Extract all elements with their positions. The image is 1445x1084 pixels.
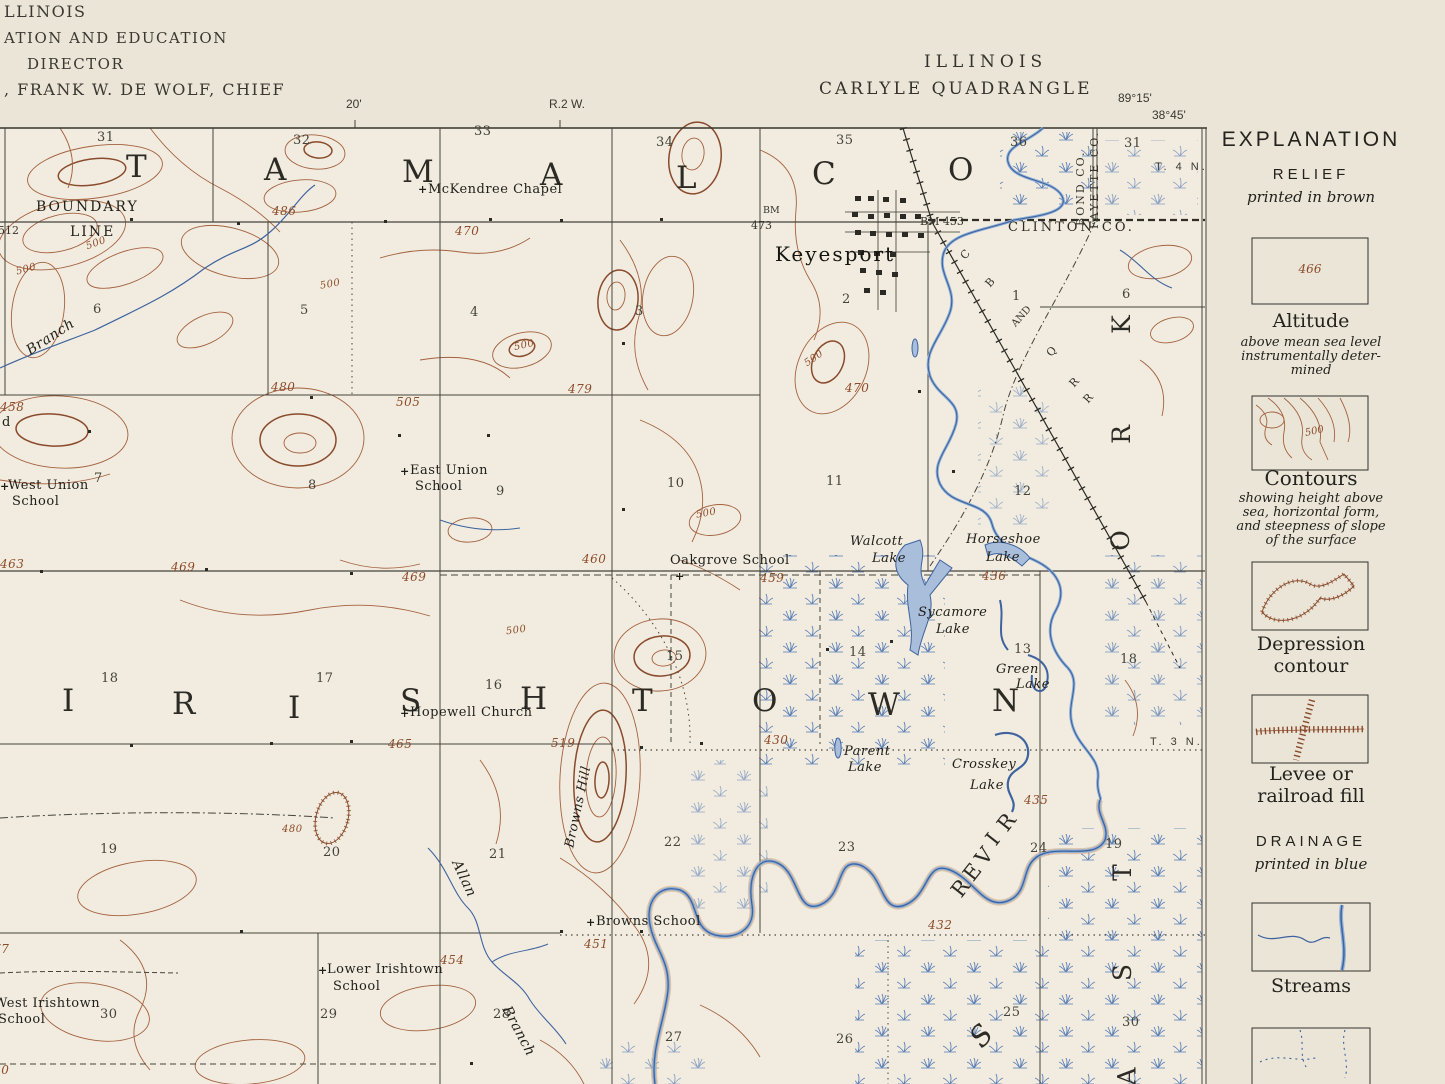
section-number: 21: [489, 848, 507, 861]
place-mckendree-chapel: McKendree Chapel: [428, 183, 562, 196]
section-number: 15: [666, 650, 684, 663]
legend-contours-desc4: of the surface: [1205, 533, 1417, 548]
contour-elevation: 459: [760, 572, 784, 584]
township-letter: A: [264, 155, 286, 186]
contour-elevation: 465: [388, 738, 412, 750]
section-number: 7: [94, 472, 103, 485]
legend-contours-label: Contours: [1205, 466, 1417, 490]
lake-name-parent-2: Lake: [848, 761, 882, 774]
section-number: 2: [842, 293, 851, 306]
contour-elevation: 451: [584, 938, 608, 950]
section-number: 13: [1014, 643, 1032, 656]
lake-name-sycamore: Sycamore: [918, 606, 987, 619]
contour-elevation: 458: [0, 401, 24, 413]
section-number: 18: [101, 672, 119, 685]
legend-streams-label: Streams: [1205, 975, 1417, 997]
legend-contours-desc3: and steepness of slope: [1205, 519, 1417, 534]
section-number: 24: [1030, 842, 1048, 855]
township-letter: T: [632, 686, 653, 717]
section-number: 6: [1122, 288, 1131, 301]
legend-depression-label1: Depression: [1205, 633, 1417, 655]
lake-name-crosskey: Crosskey: [952, 758, 1016, 771]
contour-elevation: 519: [551, 737, 575, 749]
legend-altitude-desc2: instrumentally deter-: [1205, 349, 1417, 364]
section-number: 30: [100, 1008, 118, 1021]
legend-depression-label2: contour: [1205, 655, 1417, 677]
section-number: 10: [667, 477, 685, 490]
stream-name-letter: O: [1108, 530, 1133, 551]
stream-name-letter: T: [1110, 864, 1135, 881]
header-line-3: DIRECTOR: [27, 57, 124, 72]
legend-relief-heading: RELIEF: [1205, 166, 1417, 183]
section-number: 3: [635, 305, 644, 318]
township-3n-label: T. 3 N.: [1150, 737, 1203, 748]
ruler-minute-label: 20': [346, 98, 362, 110]
section-number: 1: [1012, 290, 1021, 303]
legend-drainage-sub: printed in blue: [1205, 855, 1417, 873]
township-letter: I: [62, 686, 74, 717]
section-number: 6: [93, 303, 102, 316]
contour-elevation: 480: [282, 825, 303, 835]
stream-name-letter: A: [1115, 1067, 1140, 1084]
legend-altitude-label: Altitude: [1205, 310, 1417, 332]
school-cross-icon: +: [586, 917, 595, 928]
latitude-label: 38°45': [1152, 109, 1186, 121]
lake-name-sycamore-2: Lake: [936, 623, 970, 636]
section-number: 4: [470, 306, 479, 319]
section-number: 25: [1003, 1006, 1021, 1019]
contour-elevation: 505: [396, 396, 420, 408]
header-line-1: LLINOIS: [4, 4, 86, 20]
section-number: 30: [1122, 1016, 1140, 1029]
stream-name-letter: S: [1110, 964, 1135, 981]
section-number: 31: [1124, 137, 1142, 150]
legend-title: EXPLANATION: [1205, 128, 1417, 152]
place-west-union-school: West Union: [8, 479, 89, 492]
legend-altitude-value: 466: [1252, 262, 1368, 276]
school-cross-icon: +: [675, 571, 684, 582]
place-west-union-school-2: School: [12, 495, 59, 508]
section-number: 12: [1014, 485, 1032, 498]
lake-name-crosskey-2: Lake: [970, 779, 1004, 792]
place-west-irishtown-school-2: School: [0, 1013, 45, 1026]
legend-altitude-desc3: mined: [1205, 363, 1417, 378]
section-number: 33: [474, 125, 492, 138]
township-letter: W: [868, 690, 900, 721]
contour-elevation: 435: [1024, 794, 1048, 806]
legend-altitude-desc1: above mean sea level: [1205, 335, 1417, 350]
section-number: 8: [308, 479, 317, 492]
church-cross-icon: +: [400, 708, 409, 719]
contour-elevation: 477: [0, 943, 9, 955]
section-number: 20: [323, 846, 341, 859]
place-browns-school: Browns School: [596, 915, 701, 928]
section-number: 27: [665, 1031, 683, 1044]
spot-elevation: 473: [751, 220, 772, 231]
lake-name-horseshoe: Horseshoe: [966, 533, 1041, 546]
lake-name-horseshoe-2: Lake: [986, 551, 1020, 564]
place-lower-irishtown-school: Lower Irishtown: [327, 963, 443, 976]
contour-elevation: 470: [845, 382, 869, 394]
contour-elevation: 469: [171, 561, 195, 573]
lake-name-green: Green: [996, 663, 1039, 676]
section-number: 14: [849, 646, 867, 659]
lake-name-parent: Parent: [844, 745, 890, 758]
section-number: 23: [838, 841, 856, 854]
section-number: 19: [100, 843, 118, 856]
county-name-fayette: FAYETTE CO.: [1089, 131, 1100, 229]
place-keyesport: Keyesport: [775, 244, 895, 264]
boundary-line-label: BOUNDARY: [36, 200, 139, 214]
contour-elevation: 454: [440, 954, 464, 966]
contour-elevation: 432: [928, 919, 952, 931]
township-letter: R: [172, 689, 195, 720]
legend-levee-label2: railroad fill: [1205, 785, 1417, 807]
county-name-clinton: CLINTON CO.: [1008, 221, 1135, 234]
section-number: 36: [1010, 136, 1028, 149]
legend-contours-desc2: sea, horizontal form,: [1205, 505, 1417, 520]
place-west-irishtown-school: West Irishtown: [0, 997, 100, 1010]
header-line-2: ATION AND EDUCATION: [4, 31, 228, 46]
township-letter: C: [812, 159, 836, 190]
longitude-label: 89°15': [1118, 92, 1152, 104]
section-number: 5: [300, 304, 309, 317]
contour-elevation: 486: [272, 205, 296, 217]
contour-elevation: 436: [982, 570, 1006, 582]
place-east-union-school-2: School: [415, 480, 462, 493]
place-hopewell-church: Hopewell Church: [410, 706, 533, 719]
county-name-bond: BOND CO.: [1075, 150, 1086, 226]
section-number: 35: [836, 134, 854, 147]
section-number: 29: [320, 1008, 338, 1021]
topo-map-sheet: LLINOIS ATION AND EDUCATION DIRECTOR , F…: [0, 0, 1445, 1084]
header-line-4: , FRANK W. DE WOLF, CHIEF: [4, 82, 285, 98]
school-cross-icon: +: [318, 965, 327, 976]
township-letter: I: [288, 693, 300, 724]
contour-elevation: 460: [582, 553, 606, 565]
contour-elevation: 469: [402, 571, 426, 583]
township-4n-label: T. 4 N.: [1155, 162, 1208, 173]
legend-drainage-heading: DRAINAGE: [1205, 833, 1417, 850]
legend-levee-label1: Levee or: [1205, 763, 1417, 785]
stream-name-letter: R: [1109, 425, 1134, 444]
contour-elevation: 463: [0, 558, 24, 570]
lake-name-walcott: Walcott: [850, 535, 903, 548]
section-number: 11: [826, 475, 844, 488]
place-lower-irishtown-school-2: School: [333, 980, 380, 993]
section-number: 22: [664, 836, 682, 849]
contour-elevation: 479: [568, 383, 592, 395]
range-label: R.2 W.: [549, 98, 585, 110]
lake-name-green-2: Lake: [1016, 678, 1050, 691]
section-number: 34: [656, 136, 674, 149]
contour-elevation: 470: [455, 225, 479, 237]
township-letter: O: [752, 686, 777, 717]
partial-label: d: [2, 416, 11, 429]
section-number: 17: [316, 672, 334, 685]
place-east-union-school: East Union: [410, 464, 488, 477]
spot-elevation: 512: [0, 225, 19, 236]
sheet-quadrangle: CARLYLE QUADRANGLE: [819, 81, 1093, 98]
section-number: 32: [293, 134, 311, 147]
church-cross-icon: +: [418, 184, 427, 195]
legend-relief-sub: printed in brown: [1205, 188, 1417, 206]
school-cross-icon: +: [400, 466, 409, 477]
benchmark-label: BM 453: [920, 216, 964, 227]
contour-elevation: 480: [271, 381, 295, 393]
contour-elevation: 480: [0, 1064, 9, 1076]
township-letter: O: [948, 155, 973, 186]
place-oakgrove-school: Oakgrove School: [670, 554, 790, 567]
stream-name-letter: K: [1109, 315, 1134, 334]
contour-elevation: 430: [764, 734, 788, 746]
boundary-line-label-2: LINE: [70, 225, 115, 239]
lake-name-walcott-2: Lake: [872, 552, 906, 565]
section-number: 26: [836, 1033, 854, 1046]
section-number: 9: [496, 485, 505, 498]
sheet-state: ILLINOIS: [924, 54, 1047, 71]
section-number: 16: [485, 679, 503, 692]
township-letter: T: [126, 152, 147, 183]
township-letter: L: [676, 163, 697, 194]
section-number: 31: [97, 131, 115, 144]
legend-contours-desc1: showing height above: [1205, 491, 1417, 506]
section-number: 19: [1105, 838, 1123, 851]
benchmark-label: BM: [763, 206, 780, 216]
section-number: 18: [1120, 653, 1138, 666]
